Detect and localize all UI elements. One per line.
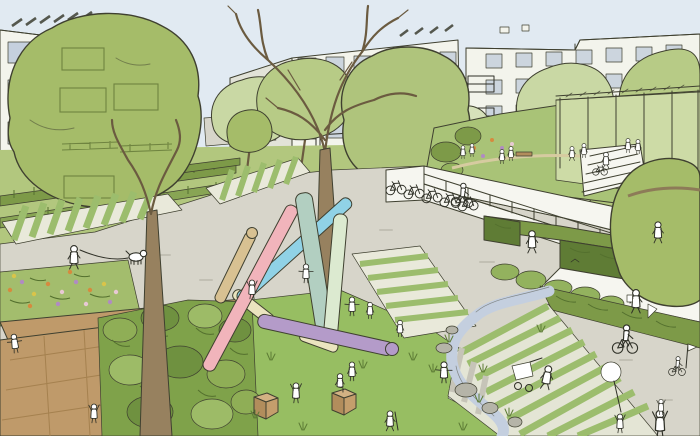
- masterplan-sketch: [0, 0, 700, 436]
- illustration-canvas: [0, 0, 700, 436]
- big-tree-left: [8, 13, 201, 207]
